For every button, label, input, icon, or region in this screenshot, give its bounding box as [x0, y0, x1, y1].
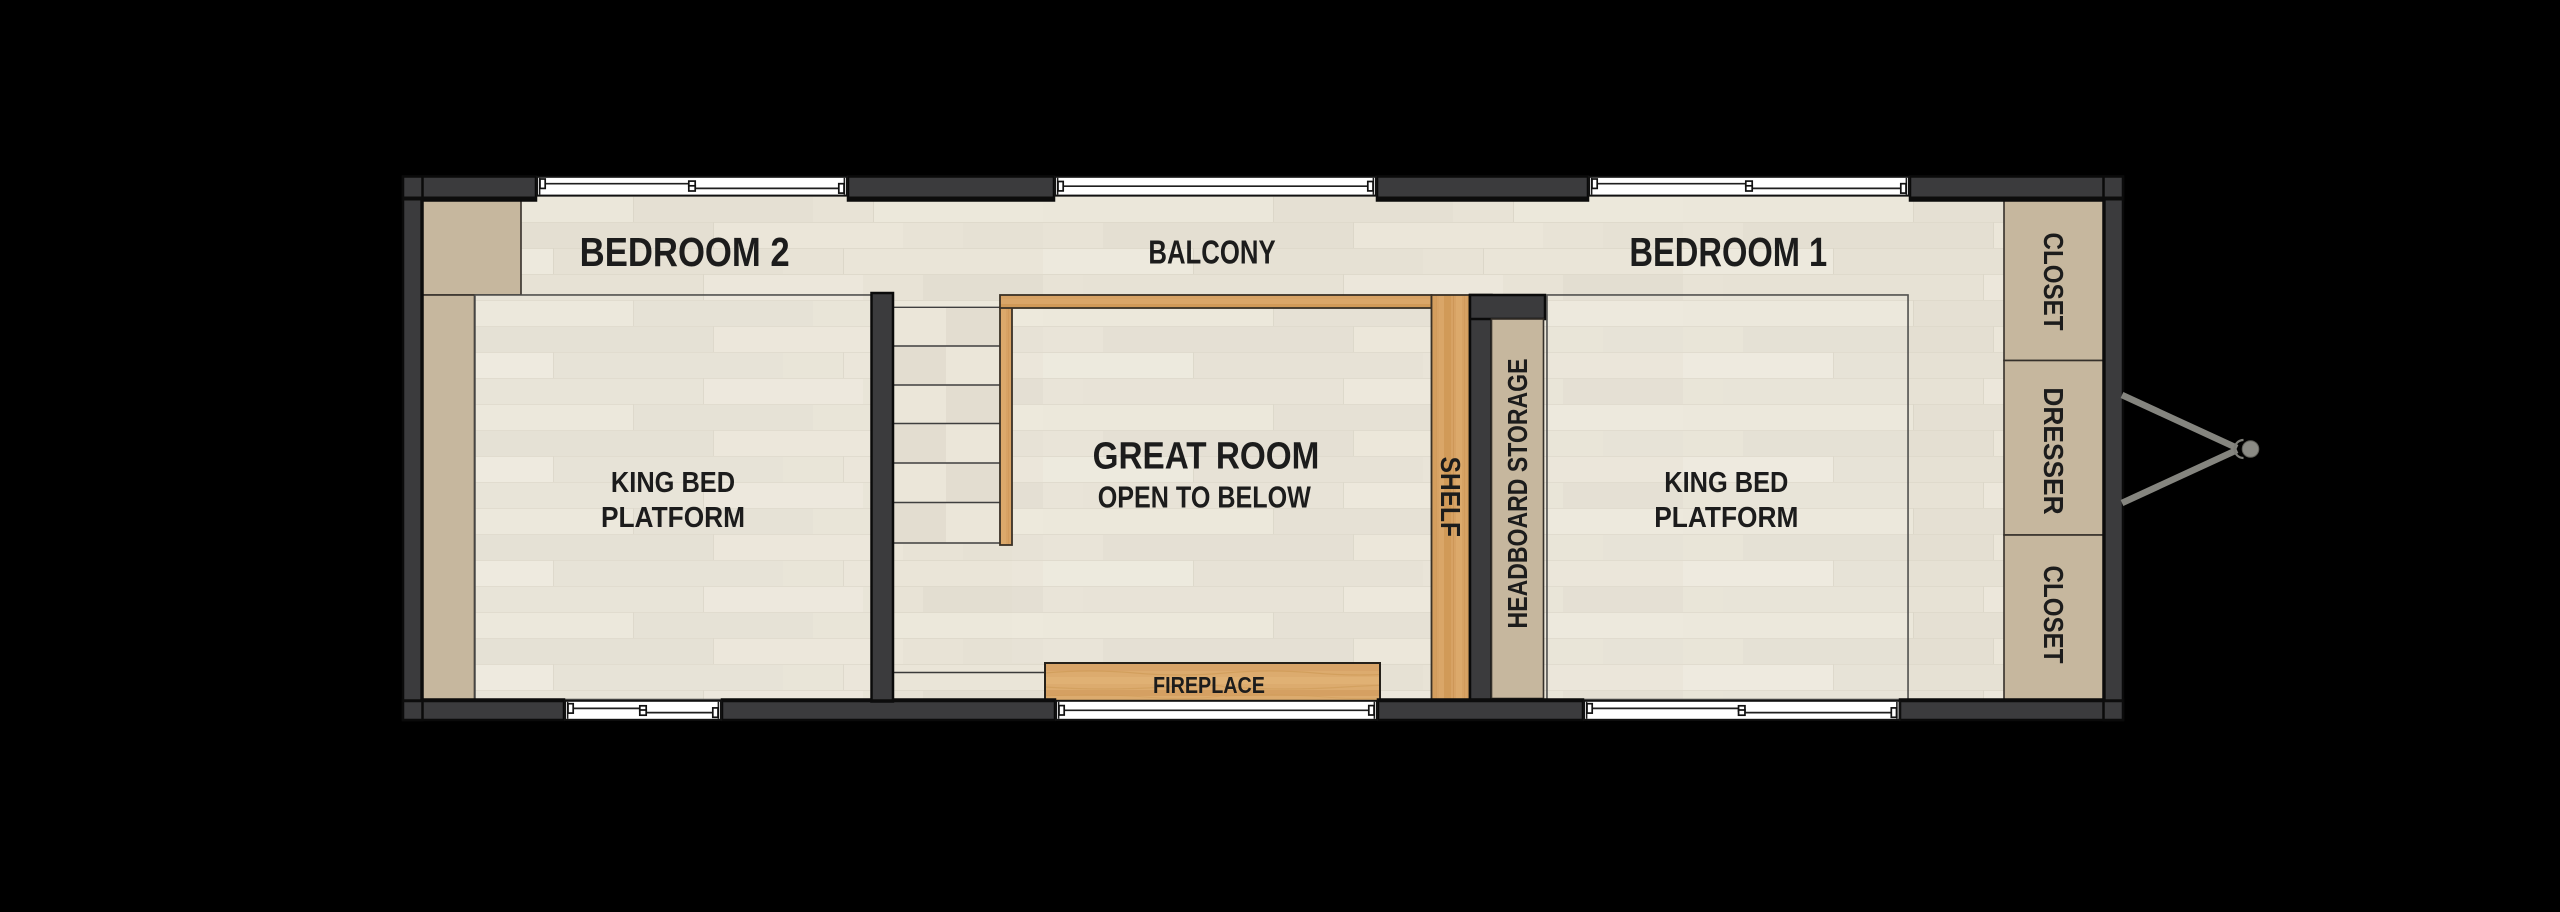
svg-text:FIREPLACE: FIREPLACE	[1153, 671, 1265, 698]
svg-text:DRESSER: DRESSER	[2038, 387, 2070, 515]
svg-text:KING BED: KING BED	[1664, 465, 1788, 498]
svg-text:PLATFORM: PLATFORM	[1654, 501, 1798, 533]
svg-text:SHELF: SHELF	[1435, 457, 1467, 537]
svg-text:OPEN TO BELOW: OPEN TO BELOW	[1098, 479, 1312, 514]
svg-text:BALCONY: BALCONY	[1148, 235, 1275, 272]
svg-text:PLATFORM: PLATFORM	[601, 501, 745, 533]
svg-text:HEADBOARD STORAGE: HEADBOARD STORAGE	[1503, 359, 1534, 629]
svg-text:CLOSET: CLOSET	[2038, 233, 2070, 331]
svg-text:BEDROOM 1: BEDROOM 1	[1629, 228, 1827, 274]
svg-text:BEDROOM 2: BEDROOM 2	[580, 230, 790, 275]
svg-text:CLOSET: CLOSET	[2038, 566, 2070, 664]
svg-text:KING BED: KING BED	[611, 465, 735, 498]
svg-text:GREAT ROOM: GREAT ROOM	[1093, 434, 1320, 477]
